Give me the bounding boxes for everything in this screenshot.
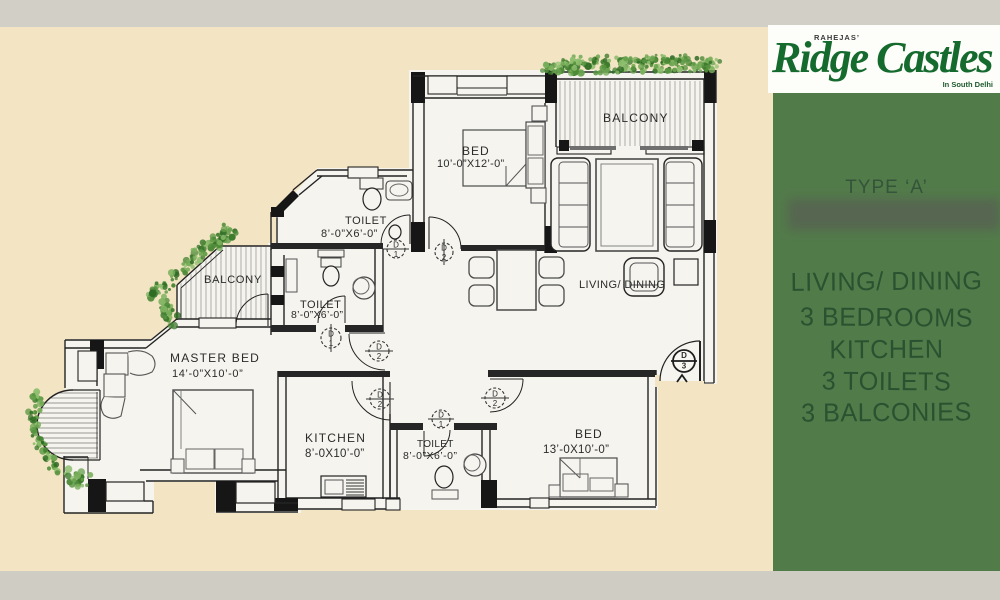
svg-text:KITCHEN: KITCHEN xyxy=(305,431,366,445)
svg-text:2: 2 xyxy=(378,400,383,409)
svg-text:D: D xyxy=(328,330,334,339)
svg-text:BALCONY: BALCONY xyxy=(204,274,262,286)
svg-text:8’-0X10’-0”: 8’-0X10’-0” xyxy=(305,448,365,460)
svg-text:1: 1 xyxy=(329,339,334,348)
svg-text:2: 2 xyxy=(377,352,382,361)
svg-text:D: D xyxy=(681,351,687,360)
svg-text:1: 1 xyxy=(394,250,399,259)
svg-text:TOILET: TOILET xyxy=(417,439,454,450)
svg-text:D: D xyxy=(492,390,498,399)
svg-text:LIVING/ DINING: LIVING/ DINING xyxy=(579,279,665,291)
svg-text:2: 2 xyxy=(442,253,447,262)
svg-text:D: D xyxy=(441,244,447,253)
svg-text:13’-0X10’-0”: 13’-0X10’-0” xyxy=(543,444,609,456)
svg-text:8’-0”X6’-0”: 8’-0”X6’-0” xyxy=(321,228,378,240)
svg-text:14’-0”X10’-0”: 14’-0”X10’-0” xyxy=(172,368,243,380)
svg-text:BALCONY: BALCONY xyxy=(603,111,669,125)
svg-text:MASTER BED: MASTER BED xyxy=(170,351,260,365)
svg-text:D: D xyxy=(393,241,399,250)
svg-text:BED: BED xyxy=(462,144,490,158)
svg-text:2: 2 xyxy=(493,399,498,408)
svg-text:8’-0”X6’-0”: 8’-0”X6’-0” xyxy=(403,450,458,462)
svg-text:TOILET: TOILET xyxy=(345,215,387,227)
svg-text:8’-0”X6’-0”: 8’-0”X6’-0” xyxy=(291,309,344,321)
svg-text:3: 3 xyxy=(682,362,687,371)
svg-text:D: D xyxy=(377,391,383,400)
svg-text:D: D xyxy=(438,411,444,420)
svg-text:D: D xyxy=(376,343,382,352)
svg-text:1: 1 xyxy=(439,420,444,429)
svg-text:BED: BED xyxy=(575,427,603,441)
svg-text:10’-0”X12’-0”: 10’-0”X12’-0” xyxy=(437,158,505,170)
